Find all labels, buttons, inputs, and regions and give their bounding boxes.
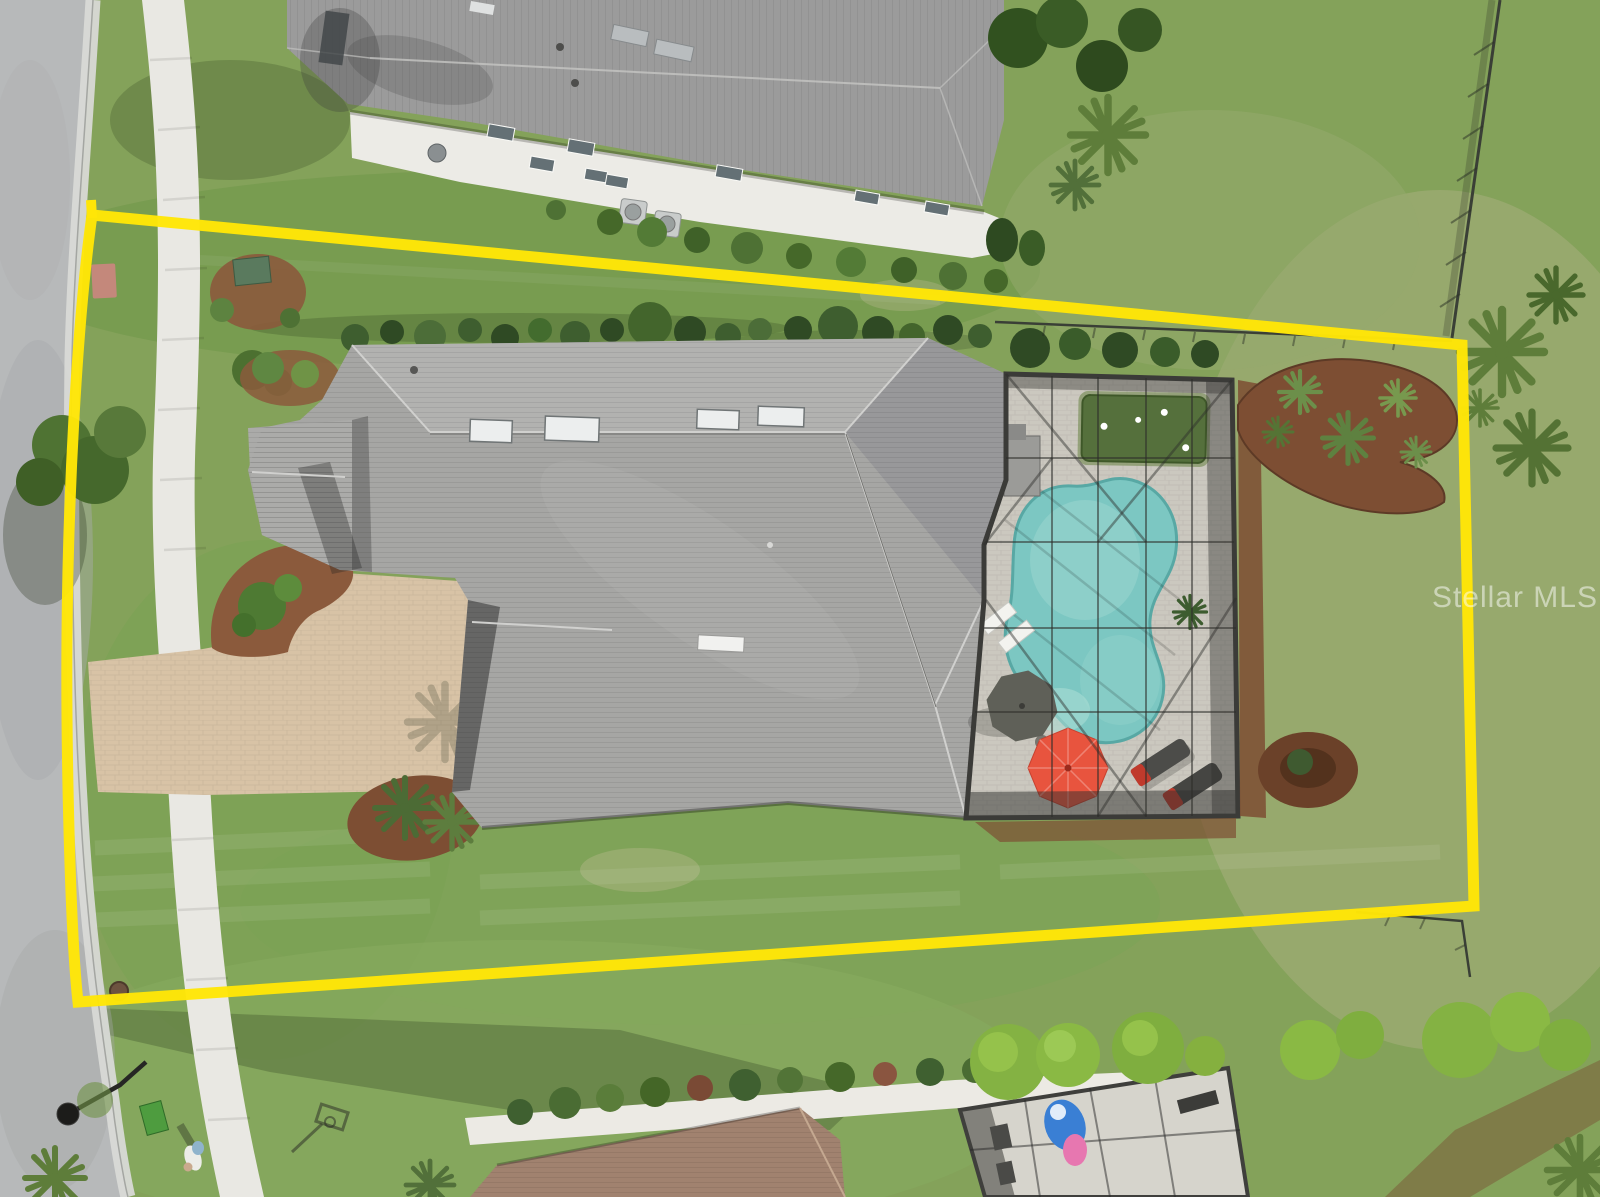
groundcover xyxy=(232,613,256,637)
potted-palm xyxy=(1174,596,1207,629)
palmetto xyxy=(1051,161,1099,209)
outdoor-kitchen xyxy=(1004,436,1040,496)
palm-tree xyxy=(375,778,435,838)
utility-area xyxy=(210,254,306,330)
aerial-listing-photo: Stellar MLS xyxy=(0,0,1600,1197)
yucca xyxy=(1380,380,1416,416)
umbrella-pole xyxy=(1019,703,1025,709)
palmetto xyxy=(1071,98,1146,173)
palm-tree xyxy=(1460,310,1544,394)
palm-tree xyxy=(1529,268,1583,322)
skylight xyxy=(758,406,805,427)
grass-tuft xyxy=(77,1082,113,1118)
skylight xyxy=(470,419,513,442)
shrub xyxy=(280,308,300,328)
pedestrian-shirt xyxy=(192,1141,204,1155)
aerial-photo-canvas: Stellar MLS xyxy=(0,0,1600,1197)
roof-speck xyxy=(767,542,773,548)
street-light-head xyxy=(57,1103,79,1125)
pedestrian-head xyxy=(184,1163,193,1172)
utility-box xyxy=(233,256,272,286)
skylight xyxy=(545,416,600,442)
roof-vent xyxy=(571,79,579,87)
yucca xyxy=(1263,417,1293,447)
small-bush xyxy=(1287,749,1313,775)
tree-shadow xyxy=(250,313,790,343)
mls-watermark: Stellar MLS xyxy=(1432,581,1598,614)
shrub xyxy=(291,360,319,388)
groundcover xyxy=(274,574,302,602)
yucca xyxy=(1279,371,1321,413)
palm-tree xyxy=(1496,412,1568,484)
pool-float-pink xyxy=(1063,1134,1087,1166)
putting-green xyxy=(1081,395,1206,463)
shrub xyxy=(252,352,284,384)
boundary-corner-stub xyxy=(91,200,92,218)
roof-vent xyxy=(698,635,745,652)
yucca xyxy=(1401,437,1431,467)
grill xyxy=(1006,424,1026,440)
mulch-strip-bottom xyxy=(975,818,1236,842)
umbrella-pole xyxy=(1065,765,1072,772)
satellite-dish xyxy=(428,144,446,162)
skylight xyxy=(697,409,740,429)
yucca xyxy=(1323,413,1374,464)
pool-float-ring xyxy=(1050,1104,1066,1120)
pool-highlight xyxy=(1030,500,1140,620)
roof-vent xyxy=(410,366,418,374)
pool-enclosure xyxy=(966,374,1266,842)
roof-vent xyxy=(556,43,564,51)
shrub xyxy=(210,298,234,322)
red-paver-pad xyxy=(91,263,117,298)
